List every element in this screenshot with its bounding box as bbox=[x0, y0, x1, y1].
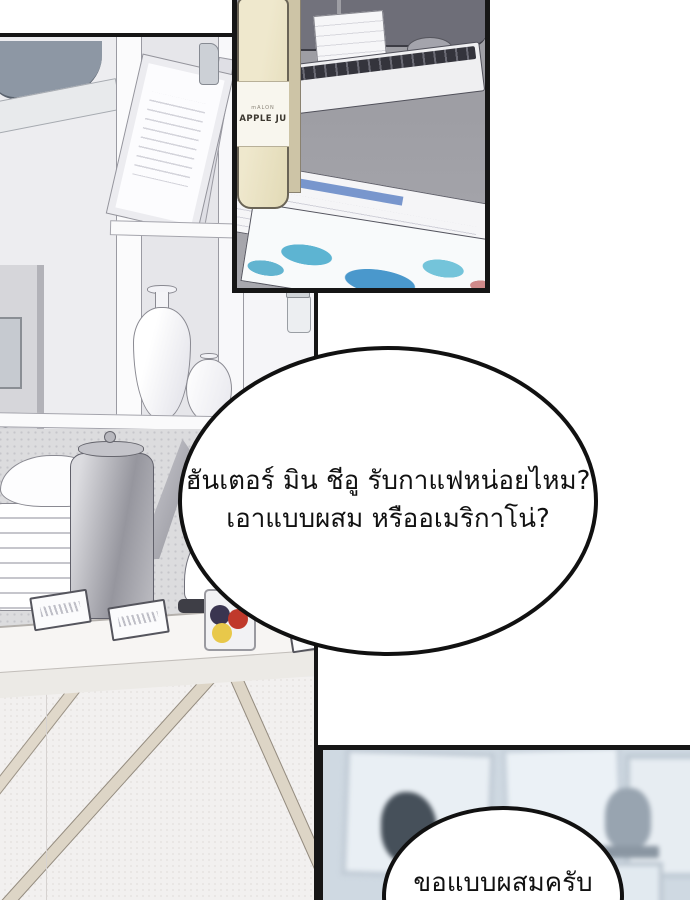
bottle-label-text: APPLE JU bbox=[239, 114, 286, 124]
webtoon-page: mALON APPLE JU ฮันเตอร์ มิน ชีอู รับกาแฟ… bbox=[0, 0, 690, 900]
reply-text: ขอแบบผสมครับ bbox=[386, 862, 620, 900]
shelf-hook bbox=[199, 43, 219, 85]
certificate-text-lines bbox=[132, 91, 206, 187]
pot-knob bbox=[104, 431, 116, 443]
machine-screen bbox=[0, 317, 22, 389]
apple-juice-bottle: mALON APPLE JU bbox=[237, 0, 289, 209]
vase-body bbox=[133, 307, 191, 419]
candy-dark bbox=[210, 605, 230, 625]
small-jar bbox=[287, 295, 311, 333]
trophy-bust bbox=[605, 788, 651, 848]
bottle-brand-text: mALON bbox=[251, 105, 275, 111]
panel-office-desk: mALON APPLE JU bbox=[232, 0, 490, 293]
bottle-label: mALON APPLE JU bbox=[237, 81, 289, 147]
question-line-1: ฮันเตอร์ มิน ชีอู รับกาแฟหน่อยไหม? bbox=[186, 463, 591, 501]
pot-lid bbox=[78, 441, 144, 457]
speech-bubble-question: ฮันเตอร์ มิน ชีอู รับกาแฟหน่อยไหม? เอาแบ… bbox=[178, 346, 598, 656]
wall-seam-line bbox=[46, 677, 47, 900]
tall-vase bbox=[133, 285, 191, 421]
candy-yellow bbox=[212, 623, 232, 643]
question-line-2: เอาแบบผสม หรืออเมริกาโน่? bbox=[226, 501, 550, 539]
